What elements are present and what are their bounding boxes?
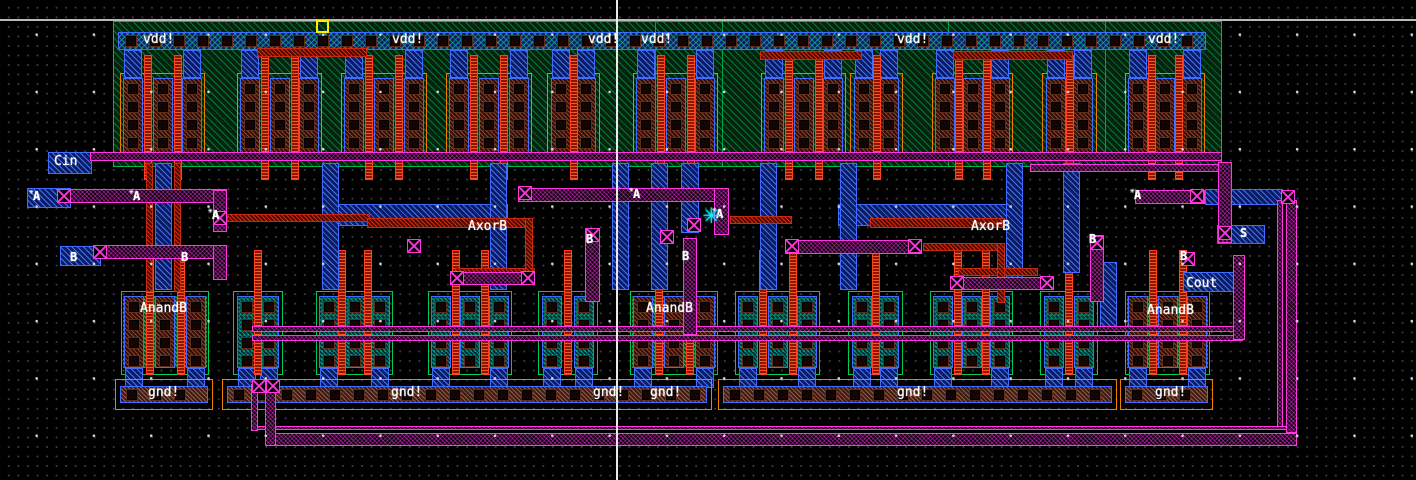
via[interactable] [518,186,532,200]
contact [581,120,591,130]
contact [995,138,1005,148]
contact [671,84,681,94]
contact [884,138,894,148]
contact [547,302,557,312]
vdd-stub[interactable] [450,50,468,78]
contact [1078,120,1088,130]
contact [191,302,201,312]
poly-gate[interactable] [291,55,299,180]
cursor-crosshair-star: ✳ [703,200,720,228]
contact [1160,84,1170,94]
rail-contact [778,390,788,400]
contact [671,120,681,130]
contact [465,356,475,366]
vdd-stub[interactable] [1129,50,1147,78]
poly-gate[interactable] [872,250,880,375]
net-label-axorb[interactable]: AxorB [971,220,1010,233]
contact [275,120,285,130]
rail-contact [946,390,956,400]
contact [700,138,710,148]
via[interactable] [1281,190,1295,204]
rail-contact [450,390,460,400]
vdd-label[interactable]: vdd! [641,33,672,46]
poly-gate[interactable] [395,55,403,180]
contact [275,102,285,112]
rail-contact [822,36,832,46]
via[interactable] [252,379,266,393]
gnd-label[interactable]: gnd! [148,386,179,399]
rail-contact [378,390,388,400]
contact [484,84,494,94]
poly-gate[interactable] [1148,55,1156,180]
contact [671,138,681,148]
rail-contact [522,390,532,400]
poly-gate[interactable] [254,250,262,375]
metal1-shape[interactable] [651,163,668,290]
port-label-cout[interactable]: Cout [1186,277,1217,290]
contact [884,120,894,130]
vdd-stub[interactable] [1183,50,1201,78]
contact [375,356,385,366]
pin-label-b[interactable]: B [70,251,77,263]
contact [995,102,1005,112]
rail-contact [498,390,508,400]
contact [1160,138,1170,148]
contact [242,356,252,366]
contact [773,302,783,312]
contact [940,120,950,130]
contact [799,138,809,148]
metal2-wire[interactable] [213,245,227,280]
metal2-wire[interactable] [252,326,1243,332]
contact [379,84,389,94]
pin-label-a[interactable]: A [212,209,219,221]
rail-contact [270,36,280,46]
rail-contact [126,36,136,46]
contact [1051,138,1061,148]
contact [454,120,464,130]
rail-contact [726,36,736,46]
rail-contact [1132,390,1142,400]
poly-gate[interactable] [470,55,478,180]
metal1-shape[interactable] [840,163,857,290]
vdd-stub[interactable] [936,50,954,78]
contact [245,120,255,130]
vdd-label[interactable]: vdd! [143,33,174,46]
contact [1079,356,1089,366]
rail-contact [570,390,580,400]
poly-gate[interactable] [789,250,797,375]
contact [995,356,1005,366]
poly-gate[interactable] [564,250,572,375]
poly-gate[interactable] [144,55,152,180]
contact [349,138,359,148]
vdd-stub[interactable] [637,50,655,78]
contact [514,102,524,112]
contact [743,302,753,312]
contact [187,138,197,148]
pin-label-b[interactable]: B [1180,250,1187,262]
pin-label-b[interactable]: B [1089,233,1096,245]
contact [884,102,894,112]
vdd-label[interactable]: vdd! [1148,33,1179,46]
contact [581,84,591,94]
poly-wire[interactable] [227,214,370,222]
rail-contact [294,36,304,46]
rail-contact [850,390,860,400]
contact [859,138,869,148]
poly-wire[interactable] [953,51,1073,60]
contact [581,102,591,112]
poly-gate[interactable] [1066,55,1074,180]
contact [350,302,360,312]
rail-contact [127,390,137,400]
metal2-wire[interactable] [1233,255,1245,340]
contact [158,138,168,148]
port-label-cin[interactable]: Cin [54,155,77,168]
crosshair-vertical-line [616,0,618,480]
metal2-wire[interactable] [267,433,1297,446]
rail-contact [342,36,352,46]
layout-editor-canvas[interactable]: vdd!vdd!vdd!vdd!vdd!vdd!gnd!gnd!gnd!gnd!… [0,0,1416,480]
poly-gate[interactable] [687,55,695,180]
vdd-label[interactable]: vdd! [392,33,423,46]
poly-wire[interactable] [525,218,533,278]
contact [1187,120,1197,130]
crosshair-horizontal-line [0,19,1416,21]
vdd-stub[interactable] [510,50,528,78]
rail-contact [1182,36,1192,46]
via[interactable] [57,189,71,203]
contact [187,120,197,130]
metal2-wire[interactable] [518,188,729,202]
poly-wire[interactable] [174,163,181,292]
pin-label-b[interactable]: B [682,250,689,262]
contact [857,302,867,312]
metal1-shape[interactable] [155,163,172,290]
contact [884,356,894,366]
contact [700,302,710,312]
rail-contact [474,390,484,400]
pin-label-a[interactable]: A [1134,189,1141,201]
poly-wire[interactable] [730,216,792,224]
metal1-shape[interactable] [1063,163,1080,273]
contact [884,302,894,312]
gnd-label[interactable]: gnd! [897,386,928,399]
contact [324,302,334,312]
contact [579,356,589,366]
rail-contact [870,36,880,46]
poly-gate[interactable] [873,55,881,180]
rail-contact [798,36,808,46]
vdd-label[interactable]: vdd! [897,33,928,46]
contact [187,102,197,112]
contact [828,84,838,94]
rail-contact [1110,36,1120,46]
rail-contact [426,390,436,400]
rail-contact [1062,36,1072,46]
contact [242,320,252,330]
contact [547,356,557,366]
contact [454,84,464,94]
vdd-stub[interactable] [405,50,423,78]
metal2-wire[interactable] [1277,200,1283,427]
pin-label-a[interactable]: A [133,190,140,202]
contact [556,102,566,112]
contact [641,102,651,112]
pin-label-a[interactable]: A [33,190,40,202]
contact [245,138,255,148]
contact [769,84,779,94]
contact [304,138,314,148]
pin-label-b[interactable]: B [181,251,188,263]
contact [556,84,566,94]
contact [769,102,779,112]
via[interactable] [1190,189,1204,203]
contact [773,356,783,366]
gnd-label[interactable]: gnd! [1155,386,1186,399]
contact [641,120,651,130]
contact [242,338,252,348]
rail-contact [1038,36,1048,46]
contact [349,120,359,130]
contact [409,120,419,130]
poly-gate[interactable] [815,55,823,180]
contact [1187,138,1197,148]
contact [379,102,389,112]
contact [938,302,948,312]
contact [1133,302,1143,312]
contact [638,356,648,366]
net-label-anandb[interactable]: AnandB [140,302,187,315]
rail-contact [1134,36,1144,46]
contact [1160,120,1170,130]
poly-gate[interactable] [338,250,346,375]
metal2-wire[interactable] [265,384,276,446]
metal2-wire[interactable] [90,152,1222,161]
via[interactable] [950,276,964,290]
poly-wire[interactable] [997,243,1005,303]
contact [1051,120,1061,130]
vdd-stub[interactable] [552,50,570,78]
gnd-label[interactable]: gnd! [593,386,624,399]
contact [187,84,197,94]
rail-contact [750,36,760,46]
rail-contact [174,36,184,46]
contact [191,338,201,348]
rail-contact [754,390,764,400]
poly-wire[interactable] [146,163,153,292]
rail-contact [802,390,812,400]
pin-label-s[interactable]: S [1240,227,1247,239]
contact [379,120,389,130]
net-label-axorb[interactable]: AxorB [468,220,507,233]
poly-gate[interactable] [657,55,665,180]
net-label-anandb[interactable]: AnandB [646,302,693,315]
contact [324,356,334,366]
poly-gate[interactable] [364,250,372,375]
rail-contact [846,36,856,46]
poly-gate[interactable] [1175,55,1183,180]
contact [940,84,950,94]
contact [799,102,809,112]
contact [669,356,679,366]
vdd-stub[interactable] [183,50,201,78]
poly-gate[interactable] [570,55,578,180]
contact [1133,120,1143,130]
contact [191,320,201,330]
contact [641,138,651,148]
via[interactable] [521,271,535,285]
via[interactable] [1218,226,1232,240]
contact [129,338,139,348]
metal1-shape[interactable] [612,163,629,290]
via[interactable] [1040,276,1054,290]
rail-contact [1042,390,1052,400]
contact [494,302,504,312]
contact [514,138,524,148]
contact [967,356,977,366]
contact [349,102,359,112]
poly-gate[interactable] [955,55,963,180]
contact [802,356,812,366]
net-label-anandb[interactable]: AnandB [1147,304,1194,317]
metal2-wire[interactable] [93,245,227,259]
gnd-label[interactable]: gnd! [391,386,422,399]
poly-gate[interactable] [983,55,991,180]
poly-wire[interactable] [367,218,533,228]
poly-gate[interactable] [174,55,182,180]
contact [484,138,494,148]
metal2-wire[interactable] [252,335,1243,341]
rail-contact [1066,390,1076,400]
poly-gate[interactable] [365,55,373,180]
contact [995,84,1005,94]
rail-contact [354,390,364,400]
via[interactable] [785,239,799,253]
contact [968,84,978,94]
poly-wire[interactable] [760,51,862,60]
contact [828,138,838,148]
metal2-wire[interactable] [1286,200,1297,433]
contact [436,356,446,366]
contact [264,356,274,366]
via[interactable] [660,230,674,244]
contact [884,84,894,94]
contact [379,138,389,148]
contact [1049,302,1059,312]
contact [409,138,419,148]
metal1-shape[interactable] [322,163,339,290]
contact [160,338,170,348]
contact [859,84,869,94]
metal2-wire[interactable] [1030,164,1222,172]
contact [160,320,170,330]
gnd-label[interactable]: gnd! [650,386,681,399]
contact [375,302,385,312]
contact [995,120,1005,130]
vdd-stub[interactable] [577,50,595,78]
poly-wire[interactable] [923,243,1005,251]
poly-wire[interactable] [257,48,367,57]
metal2-wire[interactable] [57,189,227,203]
contact [1133,356,1143,366]
rail-contact [1014,36,1024,46]
contact [1049,356,1059,366]
vdd-stub[interactable] [1074,50,1092,78]
poly-gate[interactable] [500,55,508,180]
vdd-label[interactable]: vdd! [588,33,619,46]
contact [968,138,978,148]
contact [769,120,779,130]
vdd-stub[interactable] [696,50,714,78]
metal2-wire[interactable] [785,240,922,254]
poly-gate[interactable] [261,55,269,180]
via[interactable] [908,239,922,253]
rail-contact [546,390,556,400]
via[interactable] [93,245,107,259]
contact [494,356,504,366]
pin-label-a[interactable]: A [633,188,640,200]
rail-contact [826,390,836,400]
contact [1187,84,1197,94]
rail-contact [990,36,1000,46]
gnd-rail[interactable] [227,386,707,403]
contact [641,84,651,94]
via[interactable] [687,218,701,232]
metal1-shape[interactable] [760,163,777,290]
contact [158,84,168,94]
contact [304,102,314,112]
contact [484,120,494,130]
contact [128,120,138,130]
contact [700,102,710,112]
rail-contact [1086,36,1096,46]
rail-contact [198,36,208,46]
rail-contact [970,390,980,400]
poly-gate[interactable] [785,55,793,180]
vdd-stub[interactable] [124,50,142,78]
rail-contact [438,36,448,46]
contact [940,138,950,148]
contact [859,120,869,130]
via[interactable] [407,239,421,253]
contact [938,356,948,366]
rail-contact [874,390,884,400]
metal2-wire[interactable] [255,426,1290,430]
contact [579,302,589,312]
contact [1133,84,1143,94]
rail-contact [966,36,976,46]
vdd-stub[interactable] [880,50,898,78]
rail-contact [510,36,520,46]
contact [556,120,566,130]
rail-contact [690,390,700,400]
via[interactable] [450,271,464,285]
contact [581,138,591,148]
metal1-shape[interactable] [1205,189,1283,205]
contact [158,102,168,112]
contact [465,302,475,312]
contact [275,138,285,148]
contact [1192,356,1202,366]
contact [1051,102,1061,112]
via[interactable] [266,379,280,393]
contact [304,120,314,130]
pin-label-b[interactable]: B [586,233,593,245]
rail-contact [318,36,328,46]
contact [995,302,1005,312]
